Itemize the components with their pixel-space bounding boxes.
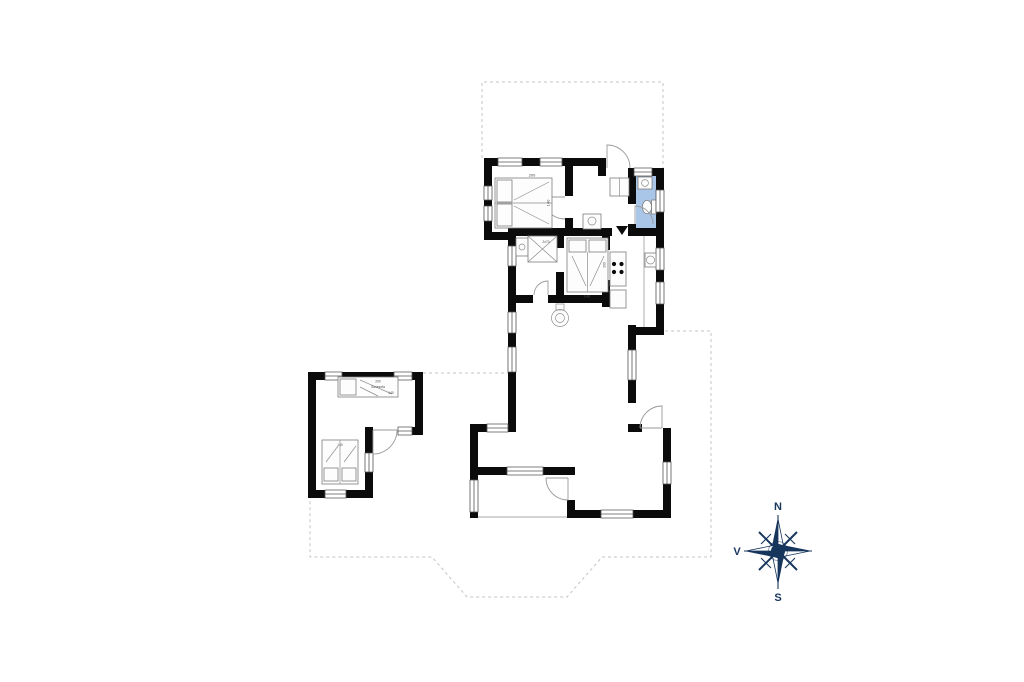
kitchen bbox=[610, 236, 656, 327]
compass-south-label: S bbox=[774, 592, 781, 604]
annex-door-arc bbox=[373, 430, 397, 454]
bunkroom-door-arc bbox=[534, 281, 548, 295]
bunk-label: 2x70 bbox=[542, 240, 549, 244]
entrance-door-arc bbox=[607, 145, 630, 168]
floor-plan-drawing: 200 140 2x70 140 200 bbox=[0, 0, 1024, 682]
terrace-outline-top bbox=[482, 82, 663, 168]
wood-stove bbox=[552, 304, 569, 327]
annex: 200 Sovesofa 140 140 bbox=[308, 372, 423, 498]
entrance-closet bbox=[610, 178, 629, 196]
annex-double-bed: 140 bbox=[322, 440, 358, 484]
bedroom-mid-bed: 140 200 bbox=[567, 238, 608, 299]
bed-mid-width-label: 140 bbox=[584, 294, 591, 299]
floor-plan-page: 200 140 2x70 140 200 bbox=[0, 0, 1024, 682]
bunk-room: 2x70 bbox=[516, 236, 557, 262]
bunkroom-sink bbox=[516, 238, 528, 256]
bed-nw-length-label: 200 bbox=[529, 173, 536, 178]
annex-sofa-bed: 200 Sovesofa 140 bbox=[338, 377, 398, 397]
entrance-marker bbox=[616, 226, 628, 235]
living-se-door-arc bbox=[640, 406, 662, 428]
toilet bbox=[642, 200, 656, 214]
sofa-width-label: 140 bbox=[388, 391, 394, 395]
terrace-door-arc bbox=[546, 478, 568, 500]
compass-center bbox=[771, 544, 785, 558]
main-house: 200 140 2x70 140 200 bbox=[470, 145, 671, 518]
bed-nw-width-label: 140 bbox=[546, 199, 551, 206]
hall-cabinet bbox=[583, 214, 601, 229]
annex-bed-width-label: 140 bbox=[337, 443, 343, 447]
kitchen-cabinet bbox=[610, 290, 626, 308]
compass-rose: N S V bbox=[733, 501, 812, 604]
bed-mid-length-label: 200 bbox=[603, 262, 607, 268]
bathroom-sink bbox=[638, 177, 652, 189]
stove-counter bbox=[610, 252, 626, 286]
sofa-length-label: 200 bbox=[375, 380, 381, 384]
compass-north-label: N bbox=[774, 501, 782, 513]
compass-west-label: V bbox=[733, 546, 741, 558]
bedroom-nw-bed: 200 140 bbox=[495, 173, 552, 229]
sofa-name-label: Sovesofa bbox=[371, 385, 385, 389]
